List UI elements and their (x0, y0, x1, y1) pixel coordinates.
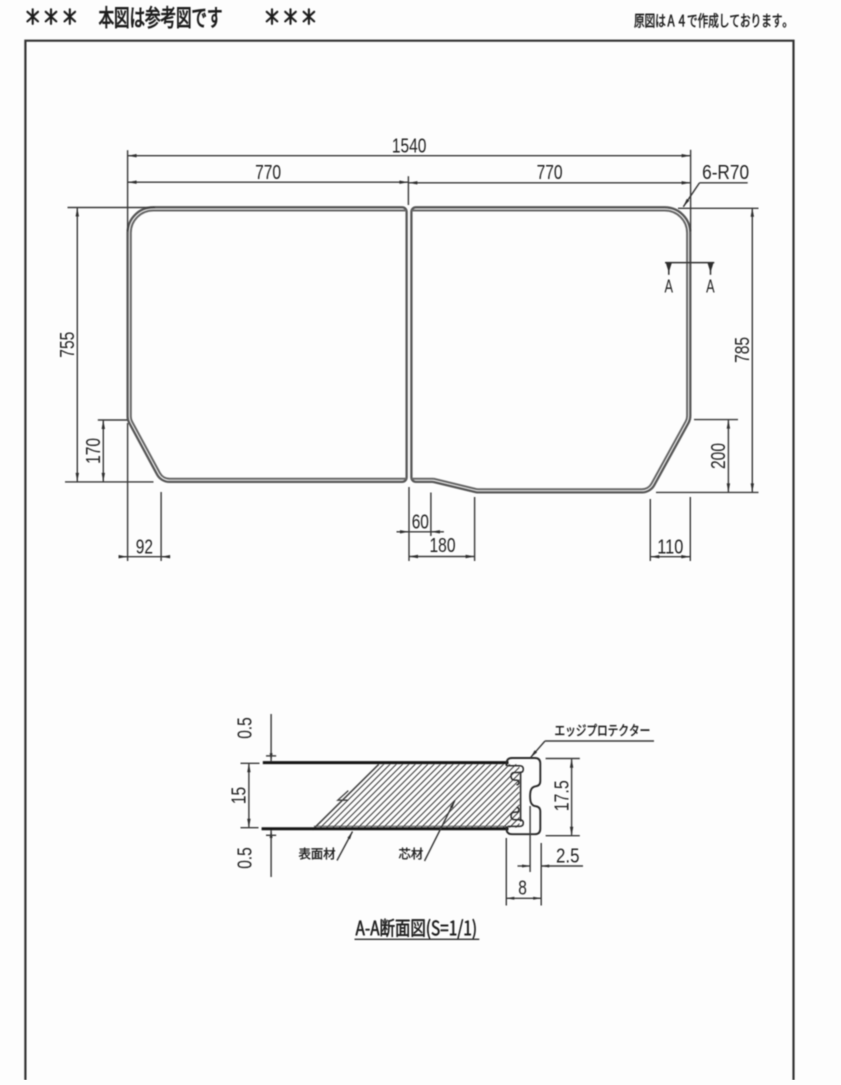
svg-text:15: 15 (229, 787, 251, 804)
svg-text:0.5: 0.5 (235, 847, 257, 869)
svg-text:110: 110 (657, 536, 683, 558)
svg-text:200: 200 (708, 443, 730, 469)
svg-text:8: 8 (518, 878, 527, 900)
svg-text:6-R70: 6-R70 (702, 162, 749, 184)
svg-text:785: 785 (732, 337, 754, 363)
svg-text:2.5: 2.5 (556, 845, 580, 867)
svg-text:A: A (665, 277, 674, 297)
svg-text:60: 60 (412, 512, 429, 534)
svg-text:170: 170 (83, 438, 105, 464)
svg-text:1540: 1540 (392, 136, 427, 158)
svg-text:A: A (706, 277, 715, 297)
svg-text:770: 770 (255, 162, 281, 184)
svg-text:0.5: 0.5 (235, 717, 257, 739)
svg-text:755: 755 (57, 332, 79, 358)
svg-text:17.5: 17.5 (551, 780, 573, 811)
svg-text:92: 92 (136, 536, 153, 558)
svg-text:770: 770 (537, 162, 563, 184)
svg-text:180: 180 (430, 535, 456, 557)
